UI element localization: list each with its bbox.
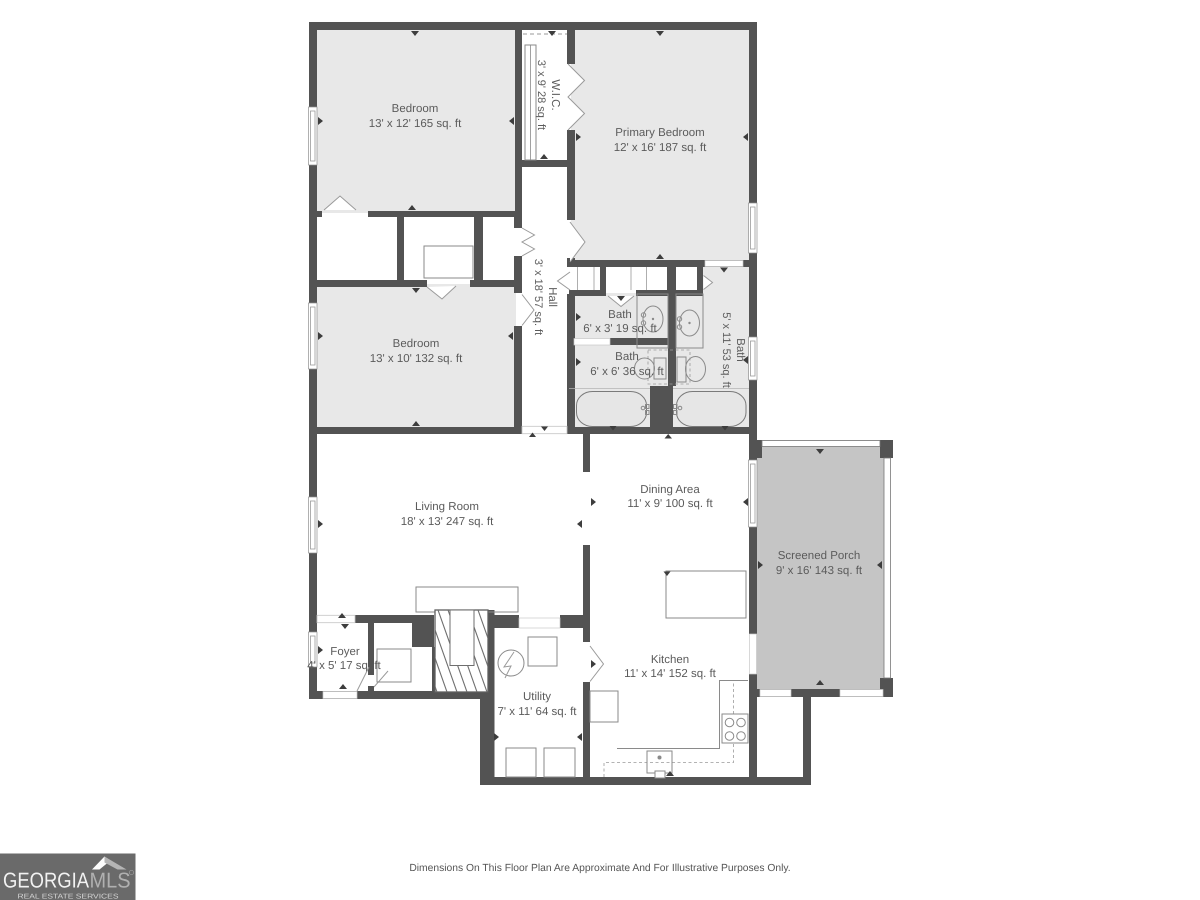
svg-text:W.I.C.: W.I.C. [549,79,561,110]
svg-text:11' x 9' 100 sq. ft: 11' x 9' 100 sq. ft [627,498,713,510]
svg-text:Hall: Hall [546,287,558,307]
svg-text:Utility: Utility [523,691,551,703]
svg-text:5' x 11' 53 sq. ft: 5' x 11' 53 sq. ft [720,312,732,388]
svg-text:7' x 11' 64 sq. ft: 7' x 11' 64 sq. ft [498,706,578,718]
svg-text:9' x 16' 143 sq. ft: 9' x 16' 143 sq. ft [776,565,863,577]
svg-text:REAL ESTATE SERVICES: REAL ESTATE SERVICES [18,894,119,900]
svg-text:6' x 3' 19 sq. ft: 6' x 3' 19 sq. ft [583,323,657,335]
svg-text:13' x 10' 132 sq. ft: 13' x 10' 132 sq. ft [370,353,463,365]
svg-text:11' x 14' 152 sq. ft: 11' x 14' 152 sq. ft [624,668,717,680]
svg-text:3' x 18' 57 sq. ft: 3' x 18' 57 sq. ft [532,259,544,335]
svg-text:Foyer: Foyer [330,646,360,658]
svg-text:12' x 16' 187 sq. ft: 12' x 16' 187 sq. ft [614,142,707,154]
svg-text:Living Room: Living Room [415,501,479,513]
svg-text:Screened Porch: Screened Porch [778,550,860,562]
svg-text:Bath: Bath [608,309,632,321]
svg-text:Dining Area: Dining Area [640,484,700,496]
svg-text:Bedroom: Bedroom [392,103,439,115]
svg-text:Kitchen: Kitchen [651,654,689,666]
svg-text:18' x 13' 247 sq. ft: 18' x 13' 247 sq. ft [401,516,494,528]
svg-text:Bedroom: Bedroom [393,338,440,350]
svg-text:3' x 9' 28 sq. ft: 3' x 9' 28 sq. ft [535,60,547,130]
svg-text:4' x 5' 17 sq. ft: 4' x 5' 17 sq. ft [307,660,381,672]
svg-text:Bath: Bath [734,338,746,362]
svg-text:13' x 12' 165 sq. ft: 13' x 12' 165 sq. ft [369,118,462,130]
svg-text:Primary Bedroom: Primary Bedroom [615,127,704,139]
svg-text:GEORGIA: GEORGIA [3,869,90,893]
svg-text:6' x 6' 36 sq. ft: 6' x 6' 36 sq. ft [590,366,664,378]
svg-text:Dimensions On This Floor Plan: Dimensions On This Floor Plan Are Approx… [409,863,790,874]
svg-text:Bath: Bath [615,351,639,363]
svg-text:MLS: MLS [90,869,131,893]
